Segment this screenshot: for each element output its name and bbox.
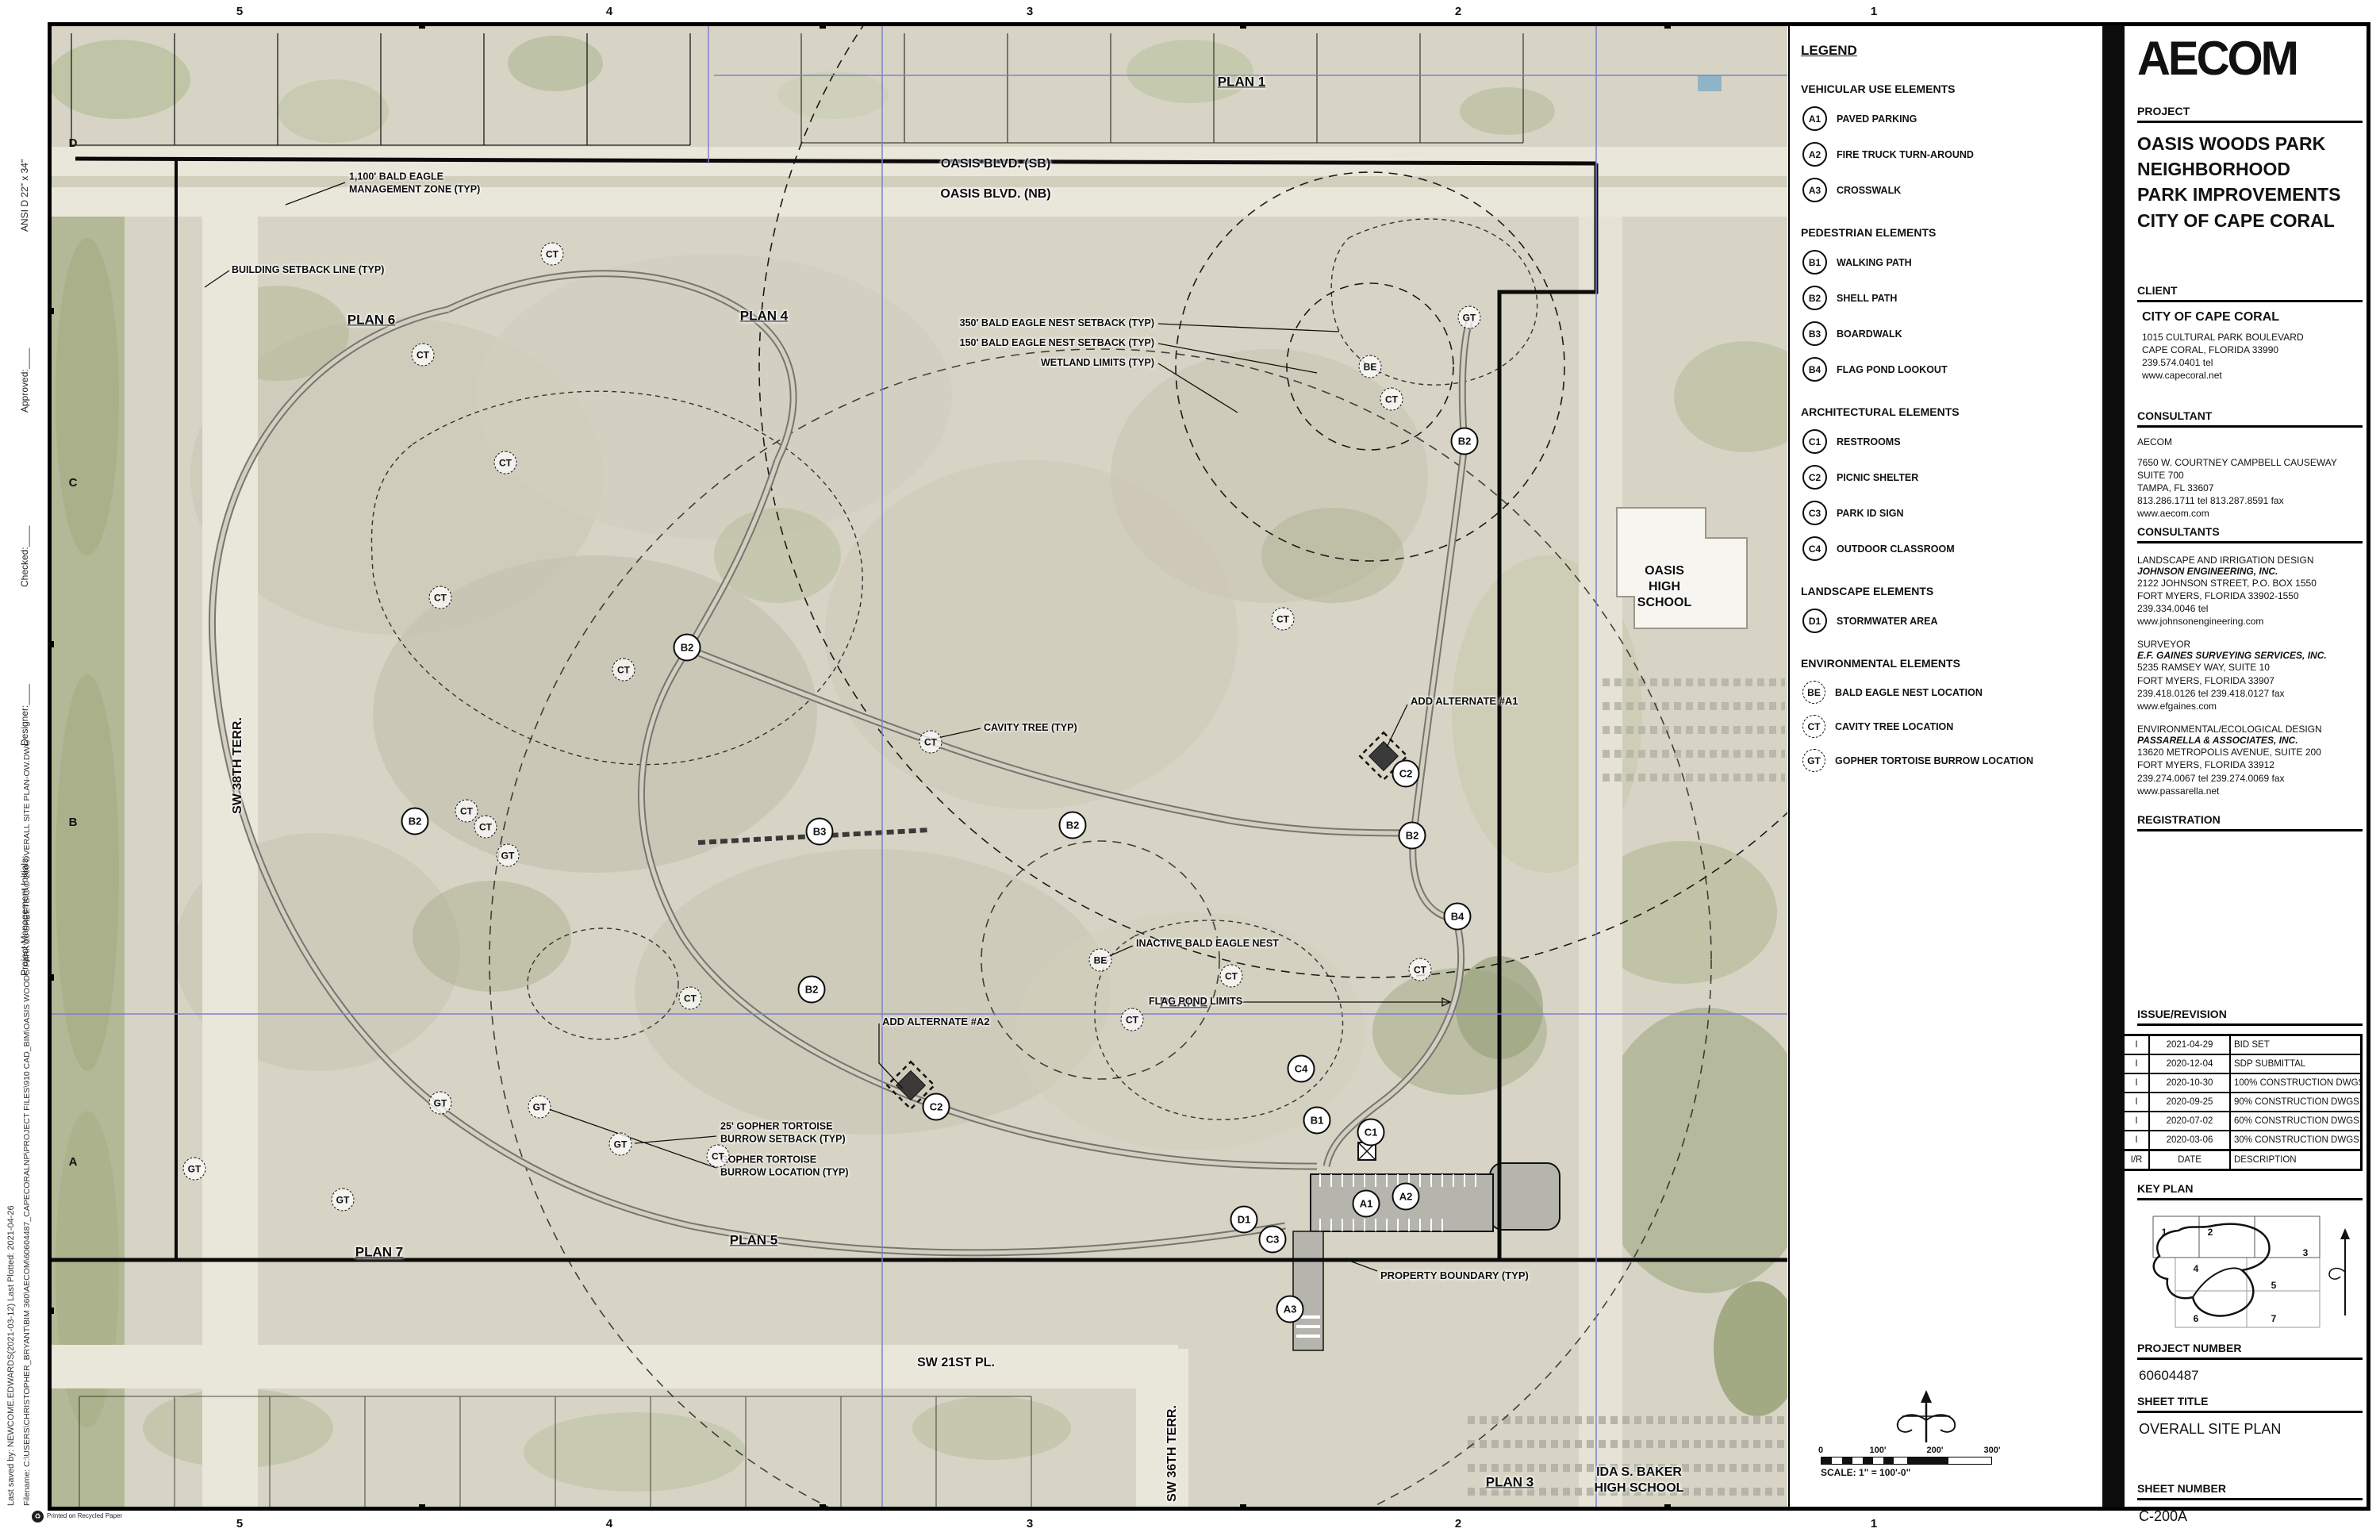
key-plan-area-number: 6 <box>2194 1313 2199 1324</box>
recycled-paper-note: ♻ Printed on Recycled Paper <box>32 1511 122 1523</box>
revision-cell: I <box>2125 1074 2150 1092</box>
scale-caption: SCALE: 1" = 100'-0" <box>1821 1467 1992 1478</box>
project-name-line: PARK IMPROVEMENTS <box>2137 182 2363 207</box>
map-label: 25' GOPHER TORTOISE BURROW SETBACK (TYP) <box>720 1120 846 1145</box>
map-marker: B1 <box>1303 1107 1331 1135</box>
key-plan-north-arrow <box>2329 1228 2350 1315</box>
revision-cell: I <box>2125 1036 2150 1054</box>
consultant-address-line: 2122 JOHNSON STREET, P.O. BOX 1550 <box>2137 577 2363 590</box>
map-marker: B2 <box>1451 428 1479 455</box>
scale-tick-label: 0 <box>1818 1446 1823 1455</box>
revision-row: I2021-04-29BID SET <box>2125 1036 2360 1055</box>
margin-filename: Filename: C:\USERS\CHRISTOPHER_BRYANT\BI… <box>22 739 32 1506</box>
map-marker: C1 <box>1357 1119 1385 1146</box>
legend-item-label: PICNIC SHELTER <box>1837 472 1918 483</box>
revision-column-header: DESCRIPTION <box>2231 1155 2360 1165</box>
map-marker: C2 <box>923 1093 950 1121</box>
issue-revision-table: I2021-04-29BID SETI2020-12-04SDP SUBMITT… <box>2125 1034 2363 1171</box>
sheet-number-value: C-200A <box>2139 1508 2363 1525</box>
legend-env-symbol: BE <box>1802 681 1825 704</box>
legend-item: D1STORMWATER AREA <box>1802 609 2093 633</box>
map-marker-environmental: CT <box>412 344 435 367</box>
revision-cell: 2020-12-04 <box>2150 1055 2231 1073</box>
legend-item-label: PAVED PARKING <box>1837 113 1917 125</box>
revision-cell: 2020-10-30 <box>2150 1074 2231 1092</box>
revision-row: I2020-10-30100% CONSTRUCTION DWGS <box>2125 1074 2360 1093</box>
legend-item: BEBALD EAGLE NEST LOCATION <box>1802 681 2093 704</box>
legend-item: C2PICNIC SHELTER <box>1802 465 2093 490</box>
legend-item-label: CAVITY TREE LOCATION <box>1835 721 1953 732</box>
legend-item: A3CROSSWALK <box>1802 178 2093 202</box>
scale-bar-graphic <box>1821 1457 1992 1465</box>
consultant-address-line: 7650 W. COURTNEY CAMPBELL CAUSEWAY <box>2137 456 2363 469</box>
margin-checked-label: Checked:____ <box>19 526 30 587</box>
map-marker: C4 <box>1288 1055 1315 1083</box>
map-label: ADD ALTERNATE #A2 <box>882 1016 990 1028</box>
grid-row-label: B <box>69 816 78 829</box>
map-marker-environmental: CT <box>919 731 942 754</box>
drawing-sheet: ANSI D 22" x 34" Approved:____ Checked:_… <box>0 0 2380 1540</box>
grid-col-label: 4 <box>606 5 612 18</box>
map-label: PLAN 1 <box>1218 73 1265 90</box>
consultant-address: 7650 W. COURTNEY CAMPBELL CAUSEWAYSUITE … <box>2137 456 2363 520</box>
legend-title: LEGEND <box>1801 43 2093 59</box>
key-plan-park-outline <box>2154 1224 2270 1316</box>
legend-section-heading: ARCHITECTURAL ELEMENTS <box>1801 405 2093 418</box>
consultant-firm: E.F. GAINES SURVEYING SERVICES, INC. <box>2137 650 2363 661</box>
map-marker-environmental: GT <box>528 1096 551 1119</box>
consultant-groups: LANDSCAPE AND IRRIGATION DESIGNJOHNSON E… <box>2137 555 2363 797</box>
map-marker: B2 <box>674 634 701 662</box>
project-number-value: 60604487 <box>2139 1368 2363 1384</box>
map-marker-environmental: GT <box>429 1092 452 1115</box>
client-heading: CLIENT <box>2137 284 2363 302</box>
consultant-address-line: www.passarella.net <box>2137 785 2363 797</box>
key-plan-area-number: 3 <box>2303 1247 2309 1258</box>
legend-item-label: WALKING PATH <box>1837 257 1912 268</box>
map-marker-environmental: CT <box>679 987 702 1010</box>
aecom-logo: AECOM <box>2137 31 2363 86</box>
consultant-address-line: FORT MYERS, FLORIDA 33912 <box>2137 758 2363 771</box>
legend-item-symbol: B4 <box>1802 357 1827 382</box>
legend-panel: LEGEND VEHICULAR USE ELEMENTSA1PAVED PAR… <box>1801 43 2093 783</box>
consultant-address-line: 813.286.1711 tel 813.287.8591 fax <box>2137 494 2363 507</box>
map-label: PLAN 6 <box>347 311 395 328</box>
margin-approved-label: Approved:____ <box>19 348 30 413</box>
revision-cell: BID SET <box>2231 1040 2360 1050</box>
grid-col-label: 2 <box>1455 5 1461 18</box>
revision-cell: SDP SUBMITTAL <box>2231 1059 2360 1069</box>
sheet-title-value: OVERALL SITE PLAN <box>2139 1421 2363 1438</box>
consultant-address-line: 239.418.0126 tel 239.418.0127 fax <box>2137 687 2363 700</box>
consultant-role: ENVIRONMENTAL/ECOLOGICAL DESIGN <box>2137 724 2363 735</box>
revision-cell: 2020-03-06 <box>2150 1131 2231 1149</box>
consultant-address-line: FORT MYERS, FLORIDA 33902-1550 <box>2137 590 2363 602</box>
map-label: PLAN 4 <box>740 307 788 324</box>
legend-item-label: STORMWATER AREA <box>1837 616 1938 627</box>
revision-row: I2020-03-0630% CONSTRUCTION DWGS. <box>2125 1131 2360 1149</box>
project-name-line: NEIGHBORHOOD <box>2137 156 2363 182</box>
margin-designer-label: Designer:____ <box>19 684 30 746</box>
revision-row: I2020-07-0260% CONSTRUCTION DWGS <box>2125 1112 2360 1131</box>
grid-row-label: A <box>69 1155 78 1169</box>
legend-section-heading: VEHICULAR USE ELEMENTS <box>1801 83 2093 95</box>
title-block-divider-bar <box>2102 25 2125 1507</box>
grid-col-label: 1 <box>1871 5 1877 18</box>
key-plan-drawing: 1234567 <box>2137 1208 2363 1334</box>
project-name-line: CITY OF CAPE CORAL <box>2137 208 2363 233</box>
legend-item: A2FIRE TRUCK TURN-AROUND <box>1802 142 2093 167</box>
legend-item-symbol: A1 <box>1802 106 1827 131</box>
map-marker-environmental: CT <box>707 1145 730 1168</box>
consultant-address-line: 5235 RAMSEY WAY, SUITE 10 <box>2137 661 2363 674</box>
revision-cell: 100% CONSTRUCTION DWGS <box>2231 1078 2360 1088</box>
map-marker-environmental: CT <box>429 586 452 609</box>
map-right-border <box>1788 22 1790 1511</box>
margin-sheet-size-label: ANSI D 22" x 34" <box>19 159 30 232</box>
key-plan-area-number: 2 <box>2208 1227 2213 1238</box>
revision-cell: 30% CONSTRUCTION DWGS. <box>2231 1135 2360 1145</box>
revision-row: I2020-12-04SDP SUBMITTAL <box>2125 1055 2360 1074</box>
revision-row: I2020-09-2590% CONSTRUCTION DWGS <box>2125 1093 2360 1112</box>
map-marker-environmental: GT <box>609 1133 632 1156</box>
legend-item-symbol: B2 <box>1802 286 1827 310</box>
registration-heading: REGISTRATION <box>2137 813 2363 831</box>
legend-item-label: BALD EAGLE NEST LOCATION <box>1835 687 1983 698</box>
legend-item: B3BOARDWALK <box>1802 321 2093 346</box>
consultant-heading: CONSULTANT <box>2137 409 2363 428</box>
grid-row-label: D <box>69 136 78 150</box>
title-block: AECOM PROJECT OASIS WOODS PARKNEIGHBORHO… <box>2137 26 2363 1540</box>
legend-item-symbol: B1 <box>1802 250 1827 275</box>
revision-column-header: I/R <box>2125 1151 2150 1169</box>
legend-sections: VEHICULAR USE ELEMENTSA1PAVED PARKINGA2F… <box>1801 83 2093 772</box>
legend-item-label: SHELL PATH <box>1837 293 1897 304</box>
map-marker: C2 <box>1392 760 1420 788</box>
map-marker-environmental: BE <box>1359 355 1382 378</box>
map-label: SW 36TH TERR. <box>1165 1405 1180 1502</box>
legend-item-label: BOARDWALK <box>1837 328 1902 340</box>
client-address-line: 239.574.0401 tel <box>2142 356 2363 369</box>
project-name: OASIS WOODS PARKNEIGHBORHOODPARK IMPROVE… <box>2137 131 2363 233</box>
revision-cell: 90% CONSTRUCTION DWGS <box>2231 1097 2360 1107</box>
map-marker-environmental: CT <box>541 243 564 266</box>
map-marker: D1 <box>1230 1206 1258 1234</box>
registration-space <box>2137 839 2363 1008</box>
revision-cell: I <box>2125 1131 2150 1149</box>
map-marker-environmental: GT <box>183 1158 206 1181</box>
legend-section-heading: LANDSCAPE ELEMENTS <box>1801 585 2093 597</box>
client-name: CITY OF CAPE CORAL <box>2142 310 2363 325</box>
consultant-address-line: www.johnsonengineering.com <box>2137 615 2363 628</box>
map-label: 150' BALD EAGLE NEST SETBACK (TYP) <box>960 337 1154 350</box>
legend-env-symbol: GT <box>1802 749 1825 772</box>
sheet-title-heading: SHEET TITLE <box>2137 1395 2363 1413</box>
revision-cell: 2020-09-25 <box>2150 1093 2231 1111</box>
project-name-line: OASIS WOODS PARK <box>2137 131 2363 156</box>
map-label: FLAG POND LIMITS <box>1149 996 1242 1008</box>
scale-tick-label: 200' <box>1927 1446 1944 1455</box>
map-marker-environmental: BE <box>1089 949 1112 972</box>
map-label: 350' BALD EAGLE NEST SETBACK (TYP) <box>960 317 1154 330</box>
client-address-line: www.capecoral.net <box>2142 369 2363 382</box>
map-marker-environmental: CT <box>474 816 497 839</box>
legend-item-symbol: A3 <box>1802 178 1827 202</box>
legend-item-label: CROSSWALK <box>1837 185 1901 196</box>
map-marker-environmental: CT <box>1121 1008 1144 1031</box>
legend-section-heading: PEDESTRIAN ELEMENTS <box>1801 226 2093 239</box>
map-label: IDA S. BAKER HIGH SCHOOL <box>1595 1465 1684 1496</box>
consultant-address-line: FORT MYERS, FLORIDA 33907 <box>2137 674 2363 687</box>
key-plan-area-number: 1 <box>2162 1227 2167 1238</box>
revision-cell: 60% CONSTRUCTION DWGS <box>2231 1116 2360 1126</box>
canal <box>52 214 125 1508</box>
revision-cell: I <box>2125 1093 2150 1111</box>
map-marker-environmental: CT <box>1380 388 1403 411</box>
map-label: WETLAND LIMITS (TYP) <box>1041 357 1154 370</box>
map-marker-environmental: CT <box>494 451 517 474</box>
legend-item-symbol: C4 <box>1802 536 1827 561</box>
map-marker-environmental: GT <box>332 1189 355 1212</box>
consultant-firm: JOHNSON ENGINEERING, INC. <box>2137 566 2363 577</box>
consultant-address-line: SUITE 700 <box>2137 469 2363 482</box>
grid-col-label: 3 <box>1027 1517 1033 1530</box>
scale-bar-ticks: 0100'200'300' <box>1821 1446 1992 1457</box>
map-label: 1,100' BALD EAGLE MANAGEMENT ZONE (TYP) <box>349 171 480 195</box>
legend-item-label: OUTDOOR CLASSROOM <box>1837 543 1955 555</box>
map-marker: B2 <box>798 976 826 1004</box>
map-label: CAVITY TREE (TYP) <box>984 722 1077 735</box>
legend-item-symbol: C2 <box>1802 465 1827 490</box>
scale-bar: 0100'200'300' SCALE: 1" = 100'-0" <box>1821 1446 1992 1478</box>
map-marker-environmental: CT <box>1409 958 1432 981</box>
map-label: OASIS BLVD. (NB) <box>940 186 1050 202</box>
map-label: INACTIVE BALD EAGLE NEST <box>1136 938 1279 950</box>
client-address-line: CAPE CORAL, FLORIDA 33990 <box>2142 344 2363 356</box>
revision-cell: I <box>2125 1112 2150 1130</box>
legend-item-label: PARK ID SIGN <box>1837 508 1904 519</box>
legend-item-symbol: D1 <box>1802 609 1827 633</box>
grid-col-label: 1 <box>1871 1517 1877 1530</box>
consultant-name: AECOM <box>2137 436 2363 448</box>
grid-col-label: 2 <box>1455 1517 1461 1530</box>
legend-section-heading: ENVIRONMENTAL ELEMENTS <box>1801 657 2093 670</box>
map-label: PLAN 5 <box>730 1231 777 1248</box>
legend-item-symbol: C3 <box>1802 501 1827 525</box>
grid-col-label: 3 <box>1027 5 1033 18</box>
map-marker-environmental: CT <box>612 659 635 682</box>
consultants-heading: CONSULTANTS <box>2137 525 2363 543</box>
consultant-firm: PASSARELLA & ASSOCIATES, INC. <box>2137 735 2363 746</box>
consultant-role: SURVEYOR <box>2137 639 2363 650</box>
client-address-line: 1015 CULTURAL PARK BOULEVARD <box>2142 331 2363 344</box>
legend-item-symbol: A2 <box>1802 142 1827 167</box>
map-marker: A1 <box>1353 1190 1380 1218</box>
consultant-address-line: 239.334.0046 tel <box>2137 602 2363 615</box>
map-label: PLAN 3 <box>1486 1473 1534 1490</box>
revision-cell: 2020-07-02 <box>2150 1112 2231 1130</box>
legend-item: B2SHELL PATH <box>1802 286 2093 310</box>
map-marker-environmental: CT <box>1272 608 1295 631</box>
margin-last-saved: Last saved by: NEWCOME.EDWARDS(2021-03-1… <box>6 1205 16 1506</box>
map-marker-environmental: CT <box>1220 965 1243 988</box>
legend-item-label: FLAG POND LOOKOUT <box>1837 364 1948 375</box>
map-marker: B2 <box>1059 812 1087 839</box>
legend-env-symbol: CT <box>1802 715 1825 738</box>
map-marker: B2 <box>1399 822 1426 850</box>
map-label: PROPERTY BOUNDARY (TYP) <box>1380 1269 1529 1282</box>
legend-item: C3PARK ID SIGN <box>1802 501 2093 525</box>
map-marker: B4 <box>1444 903 1472 931</box>
map-label: PLAN 7 <box>355 1243 403 1260</box>
consultant-address-line: www.aecom.com <box>2137 507 2363 520</box>
map-label: OASIS HIGH SCHOOL <box>1637 563 1691 611</box>
legend-item: A1PAVED PARKING <box>1802 106 2093 131</box>
legend-item: C4OUTDOOR CLASSROOM <box>1802 536 2093 561</box>
legend-item-label: RESTROOMS <box>1837 436 1901 447</box>
consultant-address-line: TAMPA, FL 33607 <box>2137 482 2363 494</box>
recycled-paper-text: Printed on Recycled Paper <box>47 1513 122 1520</box>
consultant-address-line: www.efgaines.com <box>2137 700 2363 712</box>
map-label: ADD ALTERNATE #A1 <box>1411 695 1518 708</box>
scale-tick-label: 300' <box>1984 1446 2001 1455</box>
client-address: 1015 CULTURAL PARK BOULEVARDCAPE CORAL, … <box>2142 331 2363 382</box>
map-marker-environmental: GT <box>1458 306 1481 329</box>
grid-row-label: C <box>69 476 78 490</box>
grid-col-label: 5 <box>236 1517 243 1530</box>
recycle-icon: ♻ <box>32 1511 44 1523</box>
grid-col-label: 4 <box>606 1517 612 1530</box>
key-plan-area-number: 4 <box>2194 1263 2199 1274</box>
revision-cell: 2021-04-29 <box>2150 1036 2231 1054</box>
legend-item-label: GOPHER TORTOISE BURROW LOCATION <box>1835 755 2033 766</box>
project-heading: PROJECT <box>2137 105 2363 123</box>
map-marker: B2 <box>401 808 429 835</box>
key-plan-area-number: 5 <box>2271 1280 2277 1291</box>
consultant-role: LANDSCAPE AND IRRIGATION DESIGN <box>2137 555 2363 566</box>
revision-table-header-row: I/RDATEDESCRIPTION <box>2125 1149 2360 1169</box>
sheet-number-heading: SHEET NUMBER <box>2137 1482 2363 1500</box>
map-marker-environmental: CT <box>455 800 478 823</box>
legend-item: B1WALKING PATH <box>1802 250 2093 275</box>
project-number-heading: PROJECT NUMBER <box>2137 1342 2363 1360</box>
legend-item: GTGOPHER TORTOISE BURROW LOCATION <box>1802 749 2093 772</box>
scale-tick-label: 100' <box>1870 1446 1887 1455</box>
map-marker: A2 <box>1392 1183 1420 1211</box>
legend-item: CTCAVITY TREE LOCATION <box>1802 715 2093 738</box>
map-label: SW 21ST PL. <box>917 1355 995 1371</box>
north-arrow <box>1898 1390 1955 1442</box>
map-label: GOPHER TORTOISE BURROW LOCATION (TYP) <box>720 1154 849 1178</box>
key-plan-area-number: 7 <box>2271 1313 2277 1324</box>
map-label: SW 38TH TERR. <box>230 717 246 814</box>
revision-cell: I <box>2125 1055 2150 1073</box>
consultant-address-line: 239.274.0067 tel 239.274.0069 fax <box>2137 772 2363 785</box>
map-marker: C3 <box>1259 1226 1287 1254</box>
legend-item: B4FLAG POND LOOKOUT <box>1802 357 2093 382</box>
legend-item: C1RESTROOMS <box>1802 429 2093 454</box>
legend-item-label: FIRE TRUCK TURN-AROUND <box>1837 149 1974 160</box>
map-marker-environmental: GT <box>497 844 520 867</box>
legend-item-symbol: B3 <box>1802 321 1827 346</box>
revision-column-header: DATE <box>2150 1151 2231 1169</box>
issue-revision-heading: ISSUE/REVISION <box>2137 1008 2363 1026</box>
legend-item-symbol: C1 <box>1802 429 1827 454</box>
map-marker: A3 <box>1276 1296 1304 1323</box>
consultant-address-line: 13620 METROPOLIS AVENUE, SUITE 200 <box>2137 746 2363 758</box>
map-marker: B3 <box>806 818 834 846</box>
map-label: OASIS BLVD. (SB) <box>941 156 1050 172</box>
map-label: BUILDING SETBACK LINE (TYP) <box>232 264 384 277</box>
grid-col-label: 5 <box>236 5 243 18</box>
key-plan-heading: KEY PLAN <box>2137 1182 2363 1200</box>
